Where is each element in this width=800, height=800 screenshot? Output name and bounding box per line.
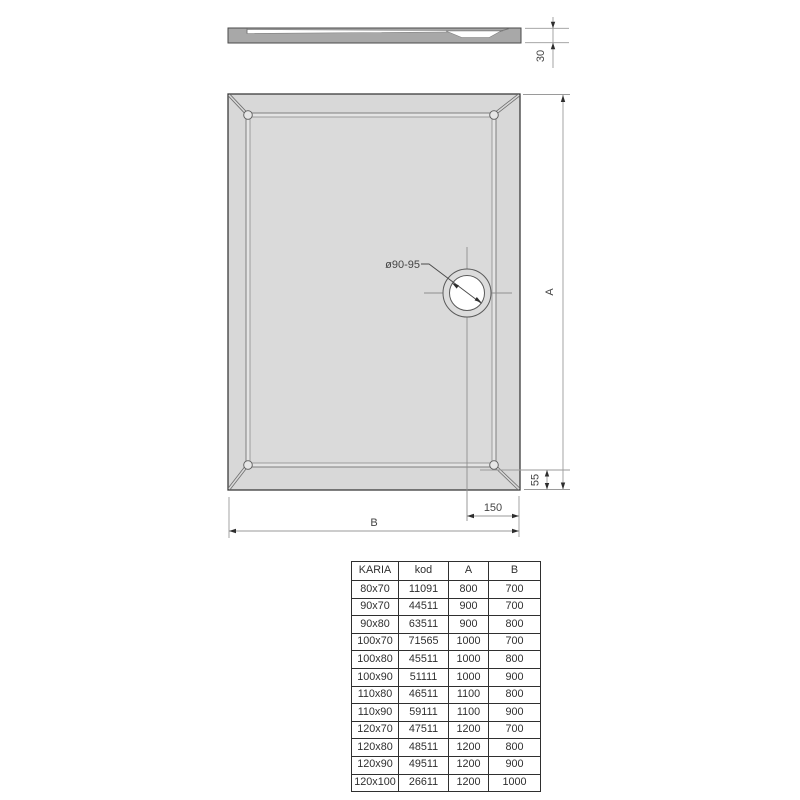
arrow-up-icon	[545, 470, 549, 477]
kod-cell: 47511	[399, 721, 449, 739]
arrow-down-icon	[561, 483, 565, 490]
b-cell: 900	[489, 756, 541, 774]
table-row: 90x7044511900700	[352, 598, 541, 616]
technical-drawing-page: 30	[0, 0, 800, 800]
drain-diameter-label: ø90-95	[385, 259, 420, 271]
a-cell: 1200	[449, 721, 489, 739]
arrow-up-icon	[561, 95, 565, 102]
table-row: 100x70715651000700	[352, 633, 541, 651]
b-cell: 700	[489, 581, 541, 599]
b-cell: 700	[489, 633, 541, 651]
size-cell: 100x70	[352, 633, 399, 651]
table-row: 120x1002661112001000	[352, 774, 541, 792]
a-cell: 1100	[449, 686, 489, 704]
table-row: 120x80485111200800	[352, 739, 541, 757]
dim-b-label: B	[370, 517, 377, 529]
kod-cell: 59111	[399, 704, 449, 722]
a-cell: 1200	[449, 756, 489, 774]
size-cell: 110x90	[352, 704, 399, 722]
b-cell: 800	[489, 686, 541, 704]
kod-cell: 26611	[399, 774, 449, 792]
table-row: 120x90495111200900	[352, 756, 541, 774]
table-row: 110x90591111100900	[352, 704, 541, 722]
kod-cell: 51111	[399, 668, 449, 686]
plan-view: ø90-95	[228, 94, 520, 521]
arrow-right-icon	[512, 514, 519, 518]
b-cell: 800	[489, 739, 541, 757]
a-cell: 800	[449, 581, 489, 599]
size-cell: 120x80	[352, 739, 399, 757]
size-cell: 90x70	[352, 598, 399, 616]
dim-55-label: 55	[530, 474, 542, 486]
arrow-right-icon	[512, 529, 519, 533]
size-table-body: 80x701109180070090x704451190070090x80635…	[352, 581, 541, 792]
size-cell: 100x90	[352, 668, 399, 686]
size-cell: 80x70	[352, 581, 399, 599]
b-cell: 700	[489, 721, 541, 739]
dimension-a: A	[523, 95, 570, 490]
arrow-down-icon	[551, 22, 555, 29]
size-table-header-row: KARIA kod A B	[352, 562, 541, 581]
b-cell: 800	[489, 651, 541, 669]
size-table: KARIA kod A B 80x701109180070090x7044511…	[351, 561, 541, 792]
kod-cell: 46511	[399, 686, 449, 704]
col-header-karia: KARIA	[352, 562, 399, 581]
table-row: 80x7011091800700	[352, 581, 541, 599]
dim-a-label: A	[544, 288, 556, 296]
table-row: 120x70475111200700	[352, 721, 541, 739]
size-cell: 100x80	[352, 651, 399, 669]
table-row: 100x90511111000900	[352, 668, 541, 686]
size-cell: 110x80	[352, 686, 399, 704]
a-cell: 1000	[449, 668, 489, 686]
b-cell: 700	[489, 598, 541, 616]
kod-cell: 11091	[399, 581, 449, 599]
kod-cell: 63511	[399, 616, 449, 634]
dimension-30: 30	[525, 17, 569, 68]
arrow-up-icon	[551, 43, 555, 50]
kod-cell: 44511	[399, 598, 449, 616]
b-cell: 900	[489, 668, 541, 686]
dim-150-label: 150	[484, 502, 502, 514]
a-cell: 1200	[449, 739, 489, 757]
kod-cell: 49511	[399, 756, 449, 774]
table-row: 100x80455111000800	[352, 651, 541, 669]
b-cell: 800	[489, 616, 541, 634]
b-cell: 1000	[489, 774, 541, 792]
col-header-a: A	[449, 562, 489, 581]
a-cell: 1000	[449, 633, 489, 651]
table-row: 110x80465111100800	[352, 686, 541, 704]
a-cell: 1200	[449, 774, 489, 792]
col-header-b: B	[489, 562, 541, 581]
arrow-down-icon	[545, 483, 549, 490]
dim-30-label: 30	[535, 50, 547, 62]
kod-cell: 48511	[399, 739, 449, 757]
size-cell: 120x100	[352, 774, 399, 792]
size-cell: 120x90	[352, 756, 399, 774]
a-cell: 1000	[449, 651, 489, 669]
table-row: 90x8063511900800	[352, 616, 541, 634]
col-header-kod: kod	[399, 562, 449, 581]
profile-view	[228, 28, 521, 43]
size-cell: 90x80	[352, 616, 399, 634]
dimension-b: B	[229, 497, 519, 538]
size-cell: 120x70	[352, 721, 399, 739]
a-cell: 900	[449, 616, 489, 634]
a-cell: 1100	[449, 704, 489, 722]
a-cell: 900	[449, 598, 489, 616]
arrow-left-icon	[229, 529, 236, 533]
kod-cell: 45511	[399, 651, 449, 669]
kod-cell: 71565	[399, 633, 449, 651]
arrow-left-icon	[467, 514, 474, 518]
b-cell: 900	[489, 704, 541, 722]
